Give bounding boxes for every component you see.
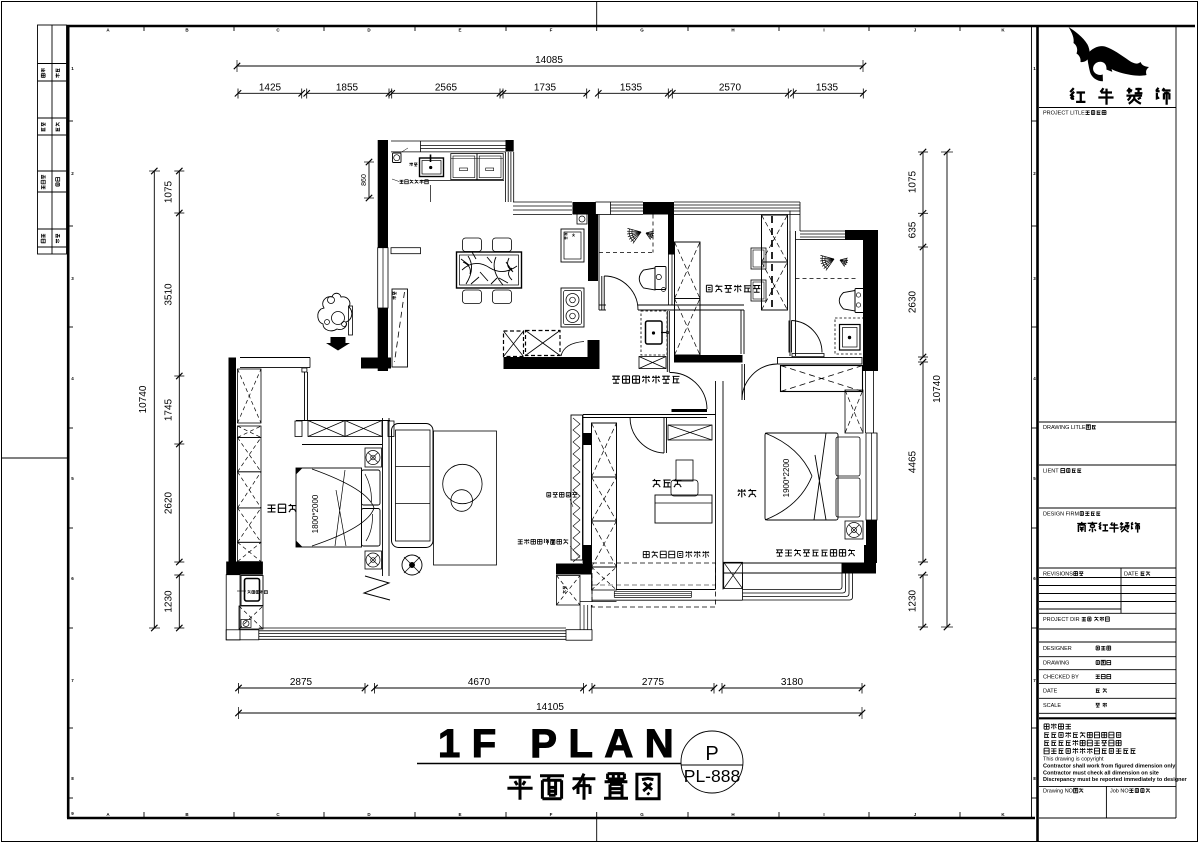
svg-text:CHECKED BY: CHECKED BY xyxy=(1043,675,1079,681)
svg-text:REVISIONS: REVISIONS xyxy=(1043,572,1073,578)
svg-text:This drawing is copyright: This drawing is copyright xyxy=(1043,757,1104,763)
svg-text:DRAWING: DRAWING xyxy=(1043,661,1069,667)
svg-text:1855: 1855 xyxy=(336,82,359,93)
svg-text:3180: 3180 xyxy=(781,677,804,688)
svg-text:1735: 1735 xyxy=(534,82,557,93)
svg-text:Discrepancy must be reported i: Discrepancy must be reported immediately… xyxy=(1043,777,1188,783)
svg-text:DATE: DATE xyxy=(1043,689,1058,695)
svg-text:3510: 3510 xyxy=(164,283,175,306)
svg-text:1230: 1230 xyxy=(164,590,175,613)
svg-text:1075: 1075 xyxy=(164,180,175,203)
svg-text:Contractor must check all dime: Contractor must check all dimension on s… xyxy=(1043,771,1159,777)
svg-text:860: 860 xyxy=(361,174,368,186)
svg-text:P: P xyxy=(705,743,718,765)
svg-text:Job NO: Job NO xyxy=(1110,789,1129,795)
svg-text:635: 635 xyxy=(908,221,919,238)
svg-text:G: G xyxy=(640,28,644,33)
svg-text:14105: 14105 xyxy=(536,702,564,713)
svg-text:PROJECT DIR: PROJECT DIR xyxy=(1043,617,1080,623)
svg-text:4670: 4670 xyxy=(468,677,491,688)
svg-text:2570: 2570 xyxy=(719,82,742,93)
svg-text:1535: 1535 xyxy=(620,82,643,93)
svg-text:DESIGN FIRM: DESIGN FIRM xyxy=(1043,512,1079,518)
svg-text:4465: 4465 xyxy=(908,450,919,473)
svg-text:2775: 2775 xyxy=(642,677,665,688)
svg-text:1800*2000: 1800*2000 xyxy=(311,494,320,533)
svg-text:G: G xyxy=(640,812,644,817)
svg-text:2630: 2630 xyxy=(908,290,919,313)
svg-text:1425: 1425 xyxy=(259,82,282,93)
svg-text:10740: 10740 xyxy=(138,385,149,413)
svg-text:14085: 14085 xyxy=(535,55,563,66)
svg-text:F: F xyxy=(550,812,553,817)
svg-text:SCALE: SCALE xyxy=(1043,703,1061,709)
svg-text:DATE: DATE xyxy=(1124,572,1139,578)
svg-text:I: I xyxy=(823,28,824,33)
svg-text:PROJECT LITLE: PROJECT LITLE xyxy=(1043,111,1085,117)
svg-text:Contractor shall work from fig: Contractor shall work from figured dimen… xyxy=(1043,764,1176,770)
svg-text:I: I xyxy=(823,812,824,817)
svg-text:F: F xyxy=(550,28,553,33)
svg-text:DRAWING LITLE: DRAWING LITLE xyxy=(1043,425,1086,431)
svg-text:DESIGNER: DESIGNER xyxy=(1043,646,1072,652)
svg-text:Drawing NO: Drawing NO xyxy=(1043,789,1074,795)
svg-text:2620: 2620 xyxy=(164,491,175,514)
svg-text:1535: 1535 xyxy=(816,82,839,93)
svg-text:H: H xyxy=(731,812,734,817)
svg-text:PL-888: PL-888 xyxy=(684,766,740,786)
svg-text:H: H xyxy=(731,28,734,33)
svg-text:1745: 1745 xyxy=(164,398,175,421)
svg-text:2565: 2565 xyxy=(435,82,458,93)
svg-text:LIENT: LIENT xyxy=(1043,469,1059,475)
svg-text:2875: 2875 xyxy=(290,677,313,688)
svg-text:E: E xyxy=(458,812,461,817)
svg-text:1900*2200: 1900*2200 xyxy=(782,458,791,497)
svg-text:10740: 10740 xyxy=(932,375,943,403)
svg-text:E: E xyxy=(458,28,461,33)
svg-text:1075: 1075 xyxy=(908,170,919,193)
svg-text:1230: 1230 xyxy=(908,589,919,612)
svg-text:*: * xyxy=(572,232,576,242)
svg-text:1F PLAN: 1F PLAN xyxy=(438,722,685,766)
